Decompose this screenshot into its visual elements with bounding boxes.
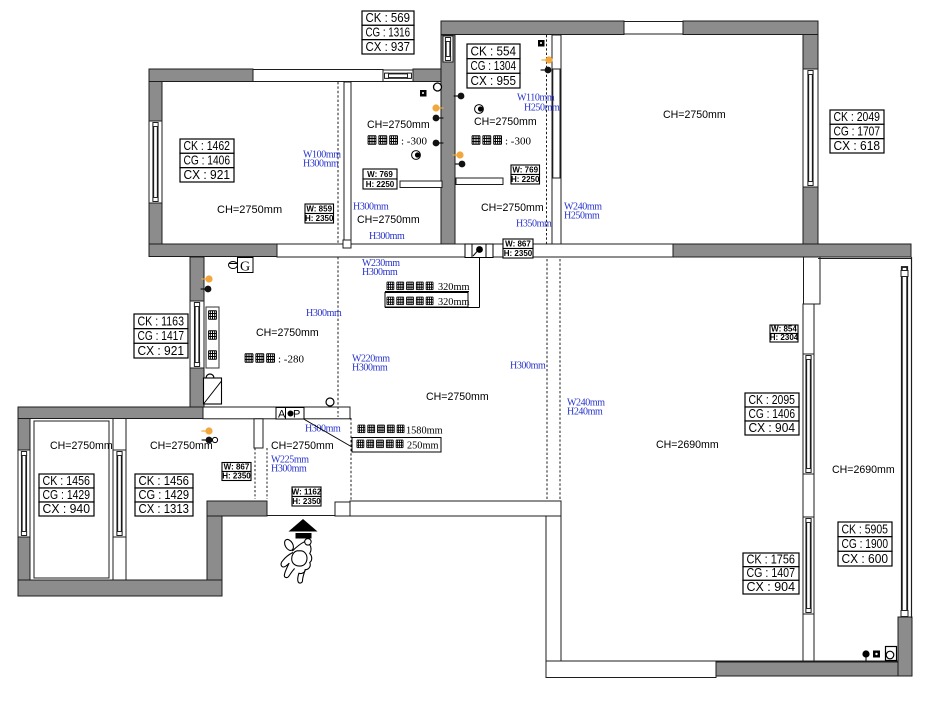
svg-text:G: G bbox=[240, 260, 250, 275]
svg-text:: -300: : -300 bbox=[401, 136, 427, 148]
svg-text:H: 2350: H: 2350 bbox=[222, 471, 251, 480]
svg-text:CH=2750mm: CH=2750mm bbox=[481, 202, 544, 214]
svg-text:H300mm: H300mm bbox=[305, 423, 341, 434]
svg-text:CX : 904: CX : 904 bbox=[749, 421, 796, 435]
svg-text:CG : 1407: CG : 1407 bbox=[747, 566, 796, 580]
svg-text:CG : 1316: CG : 1316 bbox=[366, 26, 411, 40]
svg-text:CX : 937: CX : 937 bbox=[366, 40, 411, 54]
svg-text:H350mm: H350mm bbox=[516, 218, 552, 229]
svg-text:H240mm: H240mm bbox=[567, 406, 603, 417]
svg-text:H250mm: H250mm bbox=[564, 210, 600, 221]
svg-text:CK : 1163: CK : 1163 bbox=[138, 315, 185, 329]
svg-text:W: 859: W: 859 bbox=[306, 204, 332, 213]
svg-text:CH=2750mm: CH=2750mm bbox=[426, 391, 489, 403]
svg-text:H300mm: H300mm bbox=[510, 360, 546, 371]
svg-text:CH=2690mm: CH=2690mm bbox=[656, 439, 719, 451]
svg-text:W: 867: W: 867 bbox=[505, 239, 531, 248]
svg-text:CX : 1313: CX : 1313 bbox=[139, 502, 190, 516]
svg-text:CG : 1406: CG : 1406 bbox=[184, 154, 231, 168]
svg-text:CX : 940: CX : 940 bbox=[43, 502, 91, 516]
svg-text:CK : 2095: CK : 2095 bbox=[749, 393, 796, 407]
svg-text:CH=2750mm: CH=2750mm bbox=[663, 109, 726, 121]
svg-text:H300mm: H300mm bbox=[362, 267, 398, 278]
svg-text:CK : 1756: CK : 1756 bbox=[747, 553, 796, 567]
svg-text:W: 867: W: 867 bbox=[224, 462, 250, 471]
svg-text:W: 769: W: 769 bbox=[512, 165, 538, 174]
svg-text:P: P bbox=[293, 409, 300, 421]
svg-text:CH=2690mm: CH=2690mm bbox=[832, 464, 895, 476]
svg-text:CX : 921: CX : 921 bbox=[184, 168, 231, 182]
svg-text:CH=2750mm: CH=2750mm bbox=[256, 327, 319, 339]
svg-text:CK : 554: CK : 554 bbox=[471, 45, 517, 59]
svg-text:CG : 1406: CG : 1406 bbox=[749, 407, 796, 421]
svg-text:CK : 569: CK : 569 bbox=[366, 11, 411, 25]
svg-text:CX : 618: CX : 618 bbox=[834, 139, 881, 153]
svg-text:CG : 1304: CG : 1304 bbox=[471, 59, 517, 73]
svg-text:CG : 1429: CG : 1429 bbox=[139, 488, 190, 502]
svg-text:CK : 2049: CK : 2049 bbox=[834, 110, 881, 124]
svg-text:CK : 1456: CK : 1456 bbox=[43, 474, 91, 488]
svg-text:CH=2750mm: CH=2750mm bbox=[357, 214, 420, 226]
svg-text:CX : 921: CX : 921 bbox=[138, 344, 185, 358]
svg-text:320mm: 320mm bbox=[438, 297, 469, 308]
svg-text:CH=2750mm: CH=2750mm bbox=[150, 440, 213, 452]
svg-text:H300mm: H300mm bbox=[271, 463, 307, 474]
svg-text:H: 2350: H: 2350 bbox=[292, 497, 321, 506]
svg-text:CK : 1462: CK : 1462 bbox=[184, 139, 231, 153]
svg-text:CH=2750mm: CH=2750mm bbox=[50, 440, 113, 452]
svg-text:CX : 600: CX : 600 bbox=[842, 552, 889, 566]
svg-text:H300mm: H300mm bbox=[303, 158, 339, 169]
svg-text:H: 2250: H: 2250 bbox=[511, 175, 540, 184]
svg-text:: -300: : -300 bbox=[505, 136, 531, 148]
svg-text:CX : 904: CX : 904 bbox=[747, 580, 796, 594]
svg-text:CH=2750mm: CH=2750mm bbox=[217, 204, 282, 216]
svg-text:W: 769: W: 769 bbox=[367, 170, 393, 179]
svg-text:H300mm: H300mm bbox=[306, 308, 342, 319]
svg-text:CG : 1429: CG : 1429 bbox=[43, 488, 91, 502]
svg-text:CK : 1456: CK : 1456 bbox=[139, 474, 190, 488]
svg-text:H300mm: H300mm bbox=[352, 362, 388, 373]
svg-text:W: 1162: W: 1162 bbox=[292, 487, 322, 496]
svg-text:CH=2750mm: CH=2750mm bbox=[474, 116, 537, 128]
svg-text:CK : 5905: CK : 5905 bbox=[842, 523, 889, 537]
svg-text:H: 2304: H: 2304 bbox=[770, 333, 799, 342]
svg-text:A: A bbox=[278, 409, 286, 421]
svg-text:CH=2750mm: CH=2750mm bbox=[367, 119, 430, 131]
svg-text:CG : 1707: CG : 1707 bbox=[834, 125, 881, 139]
svg-text:H300mm: H300mm bbox=[369, 231, 405, 242]
svg-text:250mm: 250mm bbox=[407, 441, 438, 452]
svg-text:H: 2350: H: 2350 bbox=[305, 214, 334, 223]
svg-text:CH=2750mm: CH=2750mm bbox=[271, 440, 334, 452]
svg-text:H250mm: H250mm bbox=[524, 103, 560, 114]
svg-text:: -280: : -280 bbox=[278, 354, 304, 366]
svg-text:1580mm: 1580mm bbox=[406, 426, 443, 437]
svg-text:CX : 955: CX : 955 bbox=[471, 74, 517, 88]
svg-text:CG : 1900: CG : 1900 bbox=[842, 537, 889, 551]
svg-text:H: 2350: H: 2350 bbox=[504, 249, 533, 258]
svg-text:H300mm: H300mm bbox=[353, 201, 389, 212]
svg-text:H: 2250: H: 2250 bbox=[366, 180, 395, 189]
svg-text:CG : 1417: CG : 1417 bbox=[138, 329, 185, 343]
